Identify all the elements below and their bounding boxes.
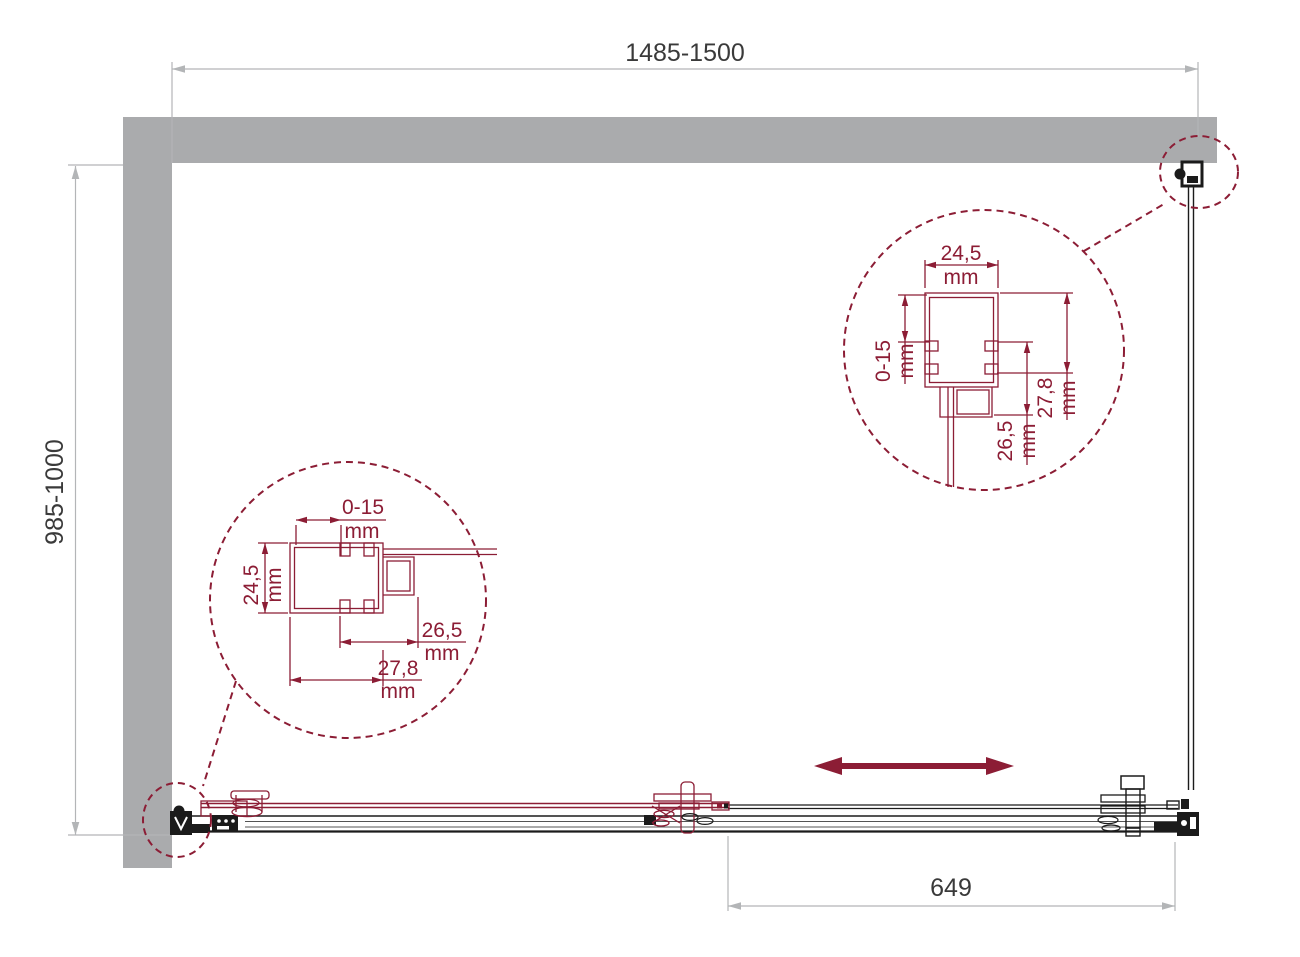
drawing-canvas: 1485-1500 985-1000 649	[0, 0, 1300, 957]
detail-left-inner-depth-unit: mm	[425, 642, 460, 665]
detail-left-outer-depth-value: 27,8	[378, 657, 419, 680]
detail-left-adjust-value: 0-15	[342, 496, 384, 519]
detail-left-outer-depth-unit: mm	[381, 680, 416, 703]
top-wall-profile	[1175, 162, 1203, 186]
detail-left-width-value: 24,5	[240, 565, 263, 606]
detail-left-width-unit: mm	[263, 568, 286, 603]
detail-right-outer-depth-value: 27,8	[1034, 378, 1057, 419]
detail-callout-circles	[143, 136, 1238, 857]
depth-dimension-label: 985-1000	[41, 439, 69, 545]
wall-top	[123, 117, 1217, 163]
detail-left-dimensions: 0-15 mm 24,5 mm 26,5 mm 27,8 mm	[240, 496, 466, 703]
sliding-door-glass	[201, 801, 729, 816]
dimension-opening: 649	[728, 836, 1175, 911]
opening-dimension-label: 649	[930, 874, 972, 902]
detail-right-width-value: 24,5	[941, 242, 982, 265]
detail-left-inner-depth-value: 26,5	[422, 619, 463, 642]
detail-right-inner-depth-unit: mm	[1017, 424, 1040, 459]
detail-left-profile	[290, 543, 497, 613]
detail-right-adjust-unit: mm	[895, 344, 918, 379]
left-wall-profile	[170, 806, 238, 836]
detail-right-outer-depth-unit: mm	[1057, 381, 1080, 416]
detail-right-adjust-value: 0-15	[872, 340, 895, 382]
detail-right-inner-depth-value: 26,5	[994, 421, 1017, 462]
width-dimension-label: 1485-1500	[625, 39, 745, 67]
side-glass-panel	[1189, 186, 1194, 790]
detail-right-profile	[925, 293, 998, 487]
detail-right-dimensions: 24,5 mm 0-15 mm 27,8 mm 26,5 mm	[872, 242, 1080, 465]
slide-direction-arrow-icon	[814, 757, 1014, 775]
detail-right-width-unit: mm	[944, 266, 979, 289]
shower-enclosure-technical-drawing: 1485-1500 985-1000 649	[0, 0, 1300, 957]
wall-left	[123, 117, 172, 868]
bottom-track	[171, 816, 1199, 832]
detail-left-adjust-unit: mm	[345, 520, 380, 543]
